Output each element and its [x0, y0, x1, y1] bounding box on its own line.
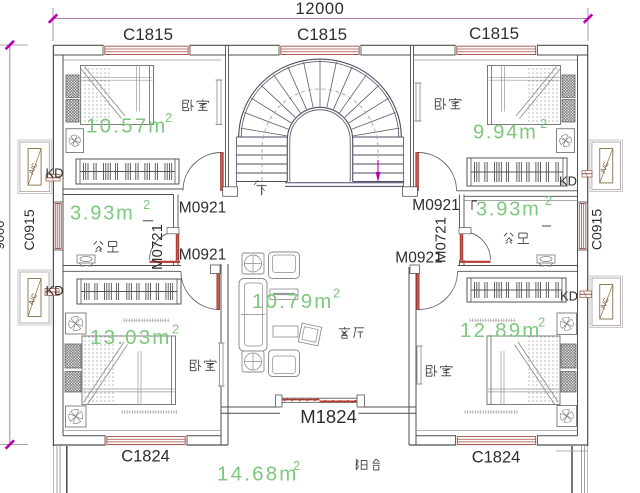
svg-text:2: 2	[172, 322, 179, 337]
svg-text:M0721: M0721	[433, 217, 450, 263]
svg-text:M0921: M0921	[179, 200, 226, 217]
svg-text:KD: KD	[45, 166, 63, 181]
svg-text:M0921: M0921	[179, 247, 226, 264]
svg-text:2: 2	[545, 193, 552, 208]
svg-text:M0921: M0921	[412, 197, 459, 214]
svg-text:KD: KD	[560, 289, 578, 304]
svg-text:9.94m: 9.94m	[473, 122, 538, 144]
svg-text:C1815: C1815	[297, 25, 347, 44]
svg-text:C0915: C0915	[21, 209, 37, 250]
svg-text:C1815: C1815	[469, 24, 519, 43]
svg-text:10.57m: 10.57m	[86, 115, 168, 138]
svg-text:2: 2	[538, 315, 545, 330]
svg-text:13.03m: 13.03m	[90, 326, 172, 349]
svg-text:M1824: M1824	[300, 406, 357, 427]
svg-text:12000: 12000	[296, 0, 345, 18]
svg-text:C1824: C1824	[121, 448, 170, 466]
svg-text:2: 2	[293, 458, 300, 473]
svg-text:C0915: C0915	[589, 209, 605, 250]
svg-text:C1815: C1815	[123, 25, 173, 44]
svg-text:3.93m: 3.93m	[70, 203, 135, 225]
svg-text:M0721: M0721	[149, 224, 166, 270]
svg-text:14.68m: 14.68m	[217, 463, 299, 486]
svg-text:KD: KD	[45, 283, 63, 298]
svg-text:2: 2	[333, 286, 340, 301]
svg-text:3.93m: 3.93m	[476, 199, 541, 221]
svg-text:12.89m: 12.89m	[460, 319, 542, 342]
svg-text:10.79m: 10.79m	[252, 290, 334, 313]
svg-text:2: 2	[143, 197, 150, 212]
svg-text:KD: KD	[559, 174, 577, 189]
svg-text:9000: 9000	[0, 221, 7, 250]
svg-text:C1824: C1824	[472, 449, 521, 467]
svg-text:2: 2	[165, 110, 172, 125]
svg-text:2: 2	[540, 116, 547, 131]
